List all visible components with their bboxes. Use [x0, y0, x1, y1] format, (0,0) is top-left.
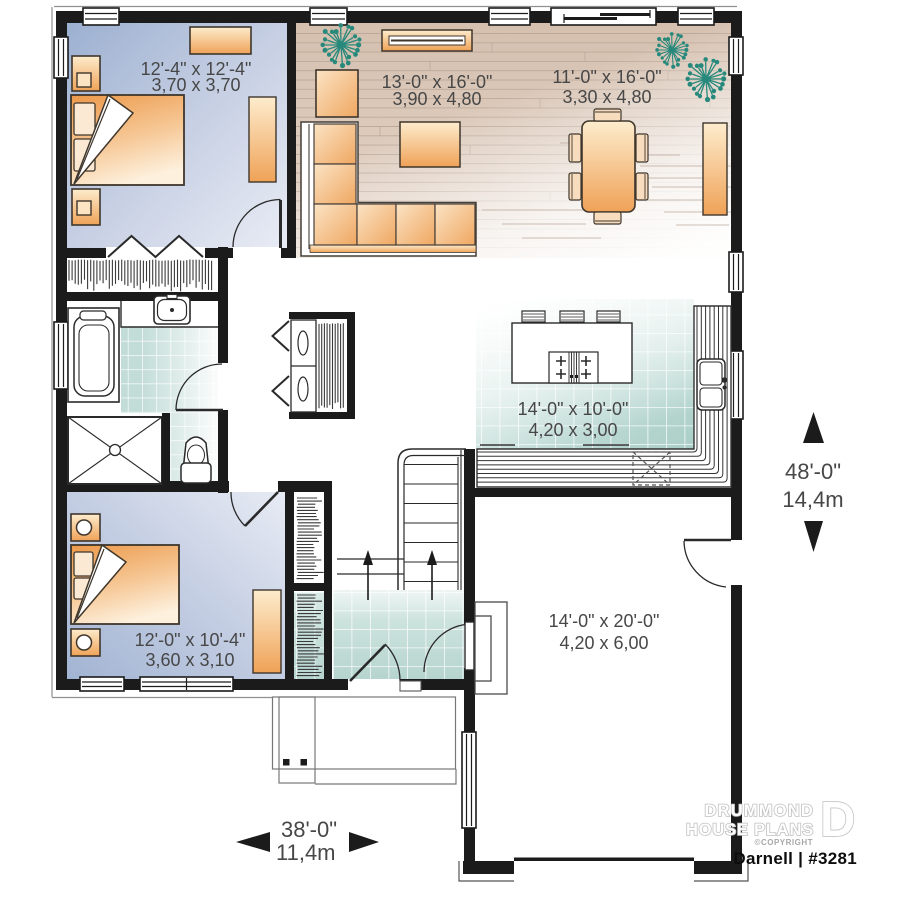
svg-text:12'-0" x 10'-4": 12'-0" x 10'-4" [135, 630, 246, 650]
svg-text:11'-0" x 16'-0": 11'-0" x 16'-0" [552, 67, 661, 87]
svg-text:38'-0": 38'-0" [281, 817, 337, 842]
svg-text:3,30 x 4,80: 3,30 x 4,80 [562, 87, 651, 107]
svg-text:4,20 x 3,00: 4,20 x 3,00 [528, 420, 617, 440]
svg-text:11,4m: 11,4m [276, 840, 336, 865]
svg-text:48'-0": 48'-0" [785, 459, 841, 484]
svg-text:14,4m: 14,4m [782, 487, 843, 512]
svg-text:HOUSE PLANS: HOUSE PLANS [686, 821, 814, 839]
svg-text:4,20 x 6,00: 4,20 x 6,00 [559, 633, 648, 653]
svg-text:14'-0" x 10'-0": 14'-0" x 10'-0" [518, 399, 629, 419]
svg-text:DRUMMOND: DRUMMOND [704, 802, 814, 820]
svg-text:©COPYRIGHT: ©COPYRIGHT [755, 838, 813, 847]
svg-text:3,90 x 4,80: 3,90 x 4,80 [392, 89, 481, 109]
svg-text:3,70 x 3,70: 3,70 x 3,70 [151, 75, 240, 95]
svg-text:Darnell | #3281: Darnell | #3281 [733, 849, 857, 868]
svg-text:14'-0" x 20'-0": 14'-0" x 20'-0" [549, 611, 660, 631]
svg-text:3,60 x 3,10: 3,60 x 3,10 [145, 650, 234, 670]
svg-text:D: D [820, 793, 855, 847]
